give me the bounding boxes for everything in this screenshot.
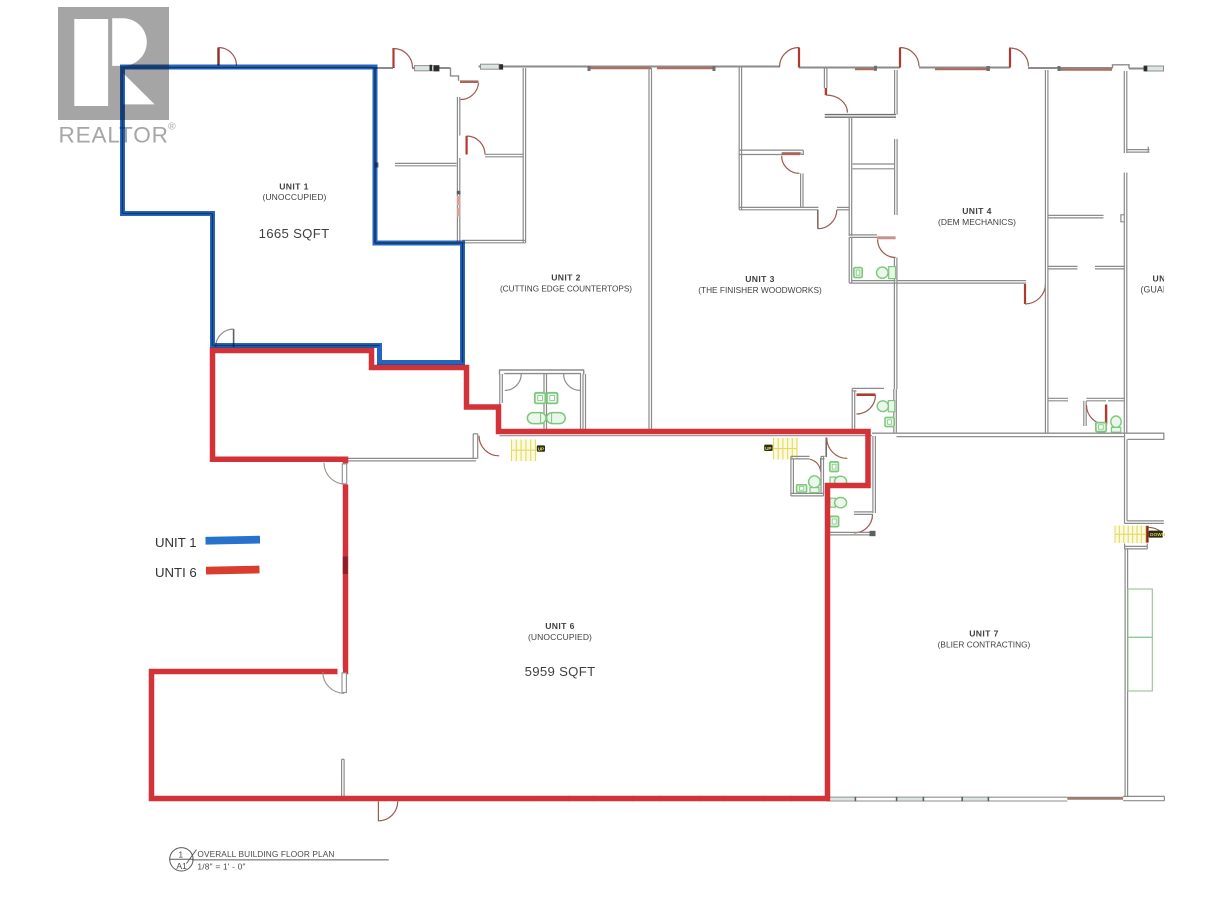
svg-text:DOWN: DOWN [1150, 532, 1166, 538]
svg-text:UNIT 6: UNIT 6 [545, 621, 575, 631]
svg-text:UNIT 5: UNIT 5 [1153, 274, 1183, 284]
svg-text:(CUTTING EDGE COUNTERTOPS): (CUTTING EDGE COUNTERTOPS) [500, 284, 632, 293]
svg-text:(UNOCCUPIED): (UNOCCUPIED) [528, 632, 592, 642]
svg-text:(BLIER CONTRACTING): (BLIER CONTRACTING) [938, 639, 1031, 649]
svg-text:UNIT 4: UNIT 4 [962, 206, 992, 216]
svg-text:1: 1 [178, 849, 183, 859]
svg-text:UNTI 6: UNTI 6 [155, 565, 197, 580]
svg-text:UNIT 1: UNIT 1 [155, 535, 197, 550]
svg-text:1/8" = 1' - 0": 1/8" = 1' - 0" [197, 861, 245, 871]
svg-text:UNIT 3: UNIT 3 [745, 274, 775, 284]
svg-text:OVERALL BUILDING FLOOR PLAN: OVERALL BUILDING FLOOR PLAN [197, 849, 334, 859]
svg-text:A1: A1 [176, 861, 187, 871]
svg-text:(GUARDIAN): (GUARDIAN) [1141, 284, 1194, 294]
svg-text:UNIT 7: UNIT 7 [969, 629, 999, 639]
svg-text:1665 SQFT: 1665 SQFT [259, 226, 330, 241]
svg-text:®: ® [168, 121, 176, 133]
svg-text:UP: UP [765, 446, 771, 451]
svg-text:(THE FINISHER WOODWORKS): (THE FINISHER WOODWORKS) [698, 285, 822, 295]
svg-text:5959 SQFT: 5959 SQFT [525, 664, 596, 679]
svg-text:UNIT 2: UNIT 2 [551, 273, 581, 283]
svg-text:(DEM MECHANICS): (DEM MECHANICS) [938, 217, 1016, 227]
svg-text:(UNOCCUPIED): (UNOCCUPIED) [262, 192, 326, 202]
svg-text:REALTOR: REALTOR [59, 123, 169, 148]
svg-text:UNIT 1: UNIT 1 [279, 182, 309, 192]
svg-text:UP: UP [538, 447, 544, 452]
